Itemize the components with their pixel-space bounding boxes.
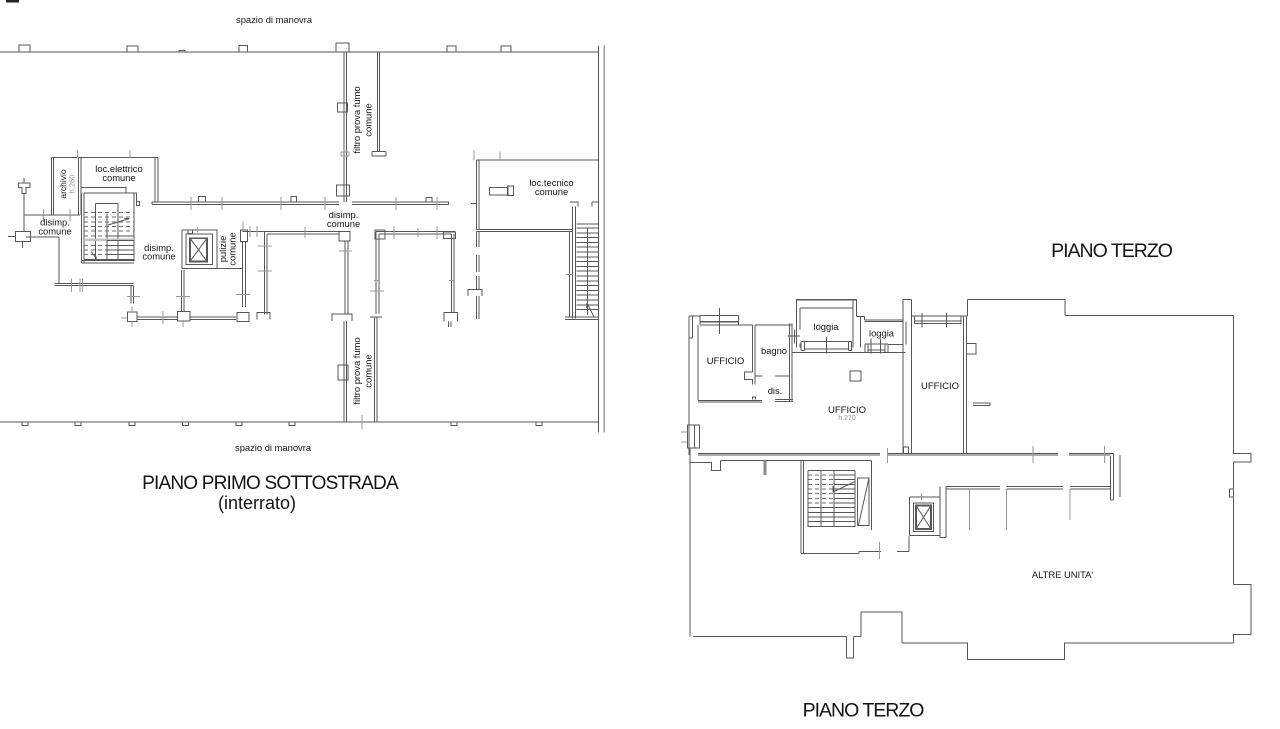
- svg-text:ALTRE UNITA': ALTRE UNITA': [1032, 569, 1094, 580]
- svg-text:comune: comune: [535, 186, 568, 197]
- svg-text:comune: comune: [227, 232, 238, 265]
- svg-text:filtro prova fumo: filtro prova fumo: [351, 337, 362, 404]
- svg-text:spazio di manovra: spazio di manovra: [236, 14, 313, 25]
- svg-text:PIANO TERZO: PIANO TERZO: [803, 700, 925, 722]
- svg-text:comune: comune: [363, 103, 374, 136]
- svg-text:archivio: archivio: [58, 169, 68, 199]
- svg-text:h.270: h.270: [838, 415, 856, 422]
- svg-text:comune: comune: [102, 172, 135, 183]
- svg-text:spazio di manovra: spazio di manovra: [235, 442, 312, 453]
- svg-text:filtro prova fumo: filtro prova fumo: [351, 86, 362, 153]
- svg-text:comune: comune: [363, 354, 374, 387]
- svg-text:bagno: bagno: [761, 345, 787, 356]
- svg-text:UFFICIO: UFFICIO: [707, 355, 745, 366]
- svg-text:comune: comune: [38, 226, 71, 237]
- svg-text:dis.: dis.: [768, 385, 783, 396]
- svg-text:UFFICIO: UFFICIO: [921, 381, 959, 392]
- svg-text:(interrato): (interrato): [218, 493, 296, 513]
- svg-text:h.260: h.260: [68, 175, 77, 194]
- svg-text:comune: comune: [142, 251, 175, 262]
- svg-text:PIANO TERZO: PIANO TERZO: [1051, 240, 1173, 262]
- svg-text:loggia: loggia: [869, 328, 895, 339]
- svg-text:PIANO PRIMO SOTTOSTRADA: PIANO PRIMO SOTTOSTRADA: [142, 473, 399, 494]
- svg-text:loggia: loggia: [813, 321, 839, 332]
- svg-text:comune: comune: [327, 218, 360, 229]
